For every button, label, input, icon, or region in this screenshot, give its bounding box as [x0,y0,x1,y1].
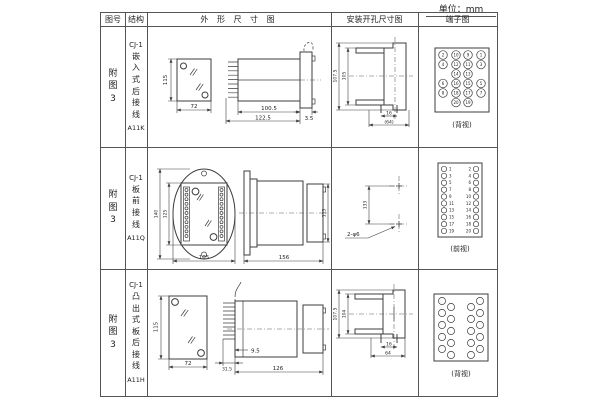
svg-text:13: 13 [465,71,471,76]
svg-text:18: 18 [466,222,472,227]
svg-text:11: 11 [449,201,455,206]
dim-label: 100.5 [261,106,277,112]
svg-text:7: 7 [449,187,452,192]
dim-label: 72 [191,104,198,110]
svg-text:13: 13 [449,208,455,213]
dim-label: 72 [185,361,192,367]
svg-text:20: 20 [453,100,459,105]
model-label: CJ-1 [129,41,143,49]
model-label: CJ-1 [129,174,143,182]
svg-text:12: 12 [466,201,472,206]
dim-label: 133 [363,201,369,210]
svg-text:2: 2 [442,52,445,57]
dim-label: 104 [342,310,348,319]
header-install: 安装开孔尺寸图 [331,13,418,26]
install-drawing-row2: 133 2-φ6 [331,147,418,269]
svg-text:14: 14 [453,71,459,76]
holes-label: 2-φ6 [347,232,360,238]
spec-table: 图号 结构 外 形 尺 寸 图 安装开孔尺寸图 端子图 附图3 附图3 附图3 … [100,12,498,397]
front-view: 115 72 [163,59,211,113]
dim-label: 115 [154,321,160,332]
header-fig: 图号 [101,13,125,26]
front-view: 115 72 [154,296,208,370]
header-outline: 外 形 尺 寸 图 [147,13,331,26]
svg-text:16: 16 [466,215,472,220]
dim-label: 16 [386,342,392,348]
terminal-numbers: 2 10 9 1 4 12 11 3 14 13 6 16 15 5 8 18 … [442,52,483,105]
dim-label: 115 [163,74,169,85]
terminal-drawing-row2: 12 34 56 78 910 1112 1314 1516 1718 1920… [418,147,497,269]
svg-text:12: 12 [453,62,459,67]
mount-label: 嵌入式后接线 [131,51,141,121]
code-label: A11Q [127,234,145,242]
code-label: A11K [128,124,145,132]
svg-text:1: 1 [449,166,452,171]
svg-text:4: 4 [442,62,445,67]
view-label: (背视) [452,120,472,129]
model-label: CJ-1 [129,281,143,289]
cutout-view: 107.5 105 16 (64) [333,37,414,127]
terminal-drawing-row1: 2 10 9 1 4 12 11 3 14 13 6 16 15 5 8 18 … [418,26,497,147]
dim-label: 122.5 [255,115,271,121]
terminal-grid [441,166,478,233]
svg-text:6: 6 [442,81,445,86]
side-view: 100.5 122.5 3.5 [226,42,321,124]
svg-text:15: 15 [465,81,471,86]
cutout-view: 107.5 104 16 64 [333,284,414,358]
dim-label: 156 [279,255,290,261]
svg-text:5: 5 [480,81,483,86]
terminal-numbers: 12 34 56 78 910 1112 1314 1516 1718 1920 [449,166,471,233]
svg-text:19: 19 [449,228,455,233]
datasheet-page: 单位：mm 图号 结构 外 形 尺 寸 图 安装开孔尺寸图 端子图 附图3 附图… [0,0,600,400]
header-terminal: 端子图 [418,13,497,26]
structure-cell-row2: CJ-1 板前接线 A11Q [125,147,147,269]
outline-drawing-row2: 140 125 105 156 115 [147,147,331,269]
svg-text:4: 4 [468,173,471,178]
mount-label: 板前接线 [131,184,141,230]
dim-label: 115 [322,209,328,218]
dim-label: 16 [386,111,392,117]
svg-text:16: 16 [453,81,459,86]
dim-label: 3.5 [305,116,314,122]
side-view: 156 115 [239,171,330,264]
install-drawing-row3: 107.5 104 16 64 [331,269,418,396]
side-view: 9.5 31.5 126 [215,282,329,375]
dim-label: 125 [163,210,169,219]
outline-drawing-row1: 115 72 100.5 122.5 [147,26,331,147]
fig-cell-row3: 附图3 [101,269,125,396]
header-structure: 结构 [125,13,147,26]
front-view: 140 125 105 [154,169,236,264]
svg-text:17: 17 [449,222,455,227]
fig-cell-row1: 附图3 [101,26,125,147]
svg-text:11: 11 [465,62,471,67]
view-label: (前视) [450,244,470,253]
svg-text:7: 7 [480,90,483,95]
svg-text:20: 20 [466,228,472,233]
svg-text:6: 6 [468,180,471,185]
svg-text:18: 18 [453,90,459,95]
svg-text:2: 2 [468,166,471,171]
svg-text:15: 15 [449,215,455,220]
terminal-grid [439,51,486,107]
svg-text:1: 1 [480,52,483,57]
svg-text:9: 9 [467,52,470,57]
svg-text:3: 3 [480,62,483,67]
mount-label: 凸出式板后接线 [131,291,141,372]
svg-text:17: 17 [465,90,471,95]
code-label: A11H [127,376,145,384]
dim-label: 9.5 [251,348,260,354]
svg-text:5: 5 [449,180,452,185]
terminal-grid [438,297,483,358]
dim-label: (64) [384,120,393,126]
svg-text:19: 19 [465,100,471,105]
view-label: (背视) [451,369,471,378]
terminal-drawing-row3: (背视) [418,269,497,396]
outline-drawing-row3: 115 72 9.5 31.5 [147,269,331,396]
dim-label: 105 [342,72,348,81]
dim-label: 126 [273,366,284,372]
svg-text:8: 8 [442,90,445,95]
structure-cell-row3: CJ-1 凸出式板后接线 A11H [125,269,147,396]
dim-label: 107.5 [333,69,339,82]
svg-text:8: 8 [468,187,471,192]
svg-text:3: 3 [449,173,452,178]
svg-text:10: 10 [466,194,472,199]
fig-cell-row2: 附图3 [101,147,125,269]
dim-label: 140 [154,210,160,219]
dim-label: 31.5 [222,367,232,373]
svg-text:14: 14 [466,208,472,213]
holes-view: 133 2-φ6 [345,176,409,238]
install-drawing-row1: 107.5 105 16 (64) [331,26,418,147]
svg-text:9: 9 [449,194,452,199]
structure-cell-row1: CJ-1 嵌入式后接线 A11K [125,26,147,147]
svg-text:10: 10 [453,52,459,57]
dim-label: 64 [385,351,391,357]
dim-label: 107.5 [333,307,339,320]
dim-label: 105 [199,255,210,261]
